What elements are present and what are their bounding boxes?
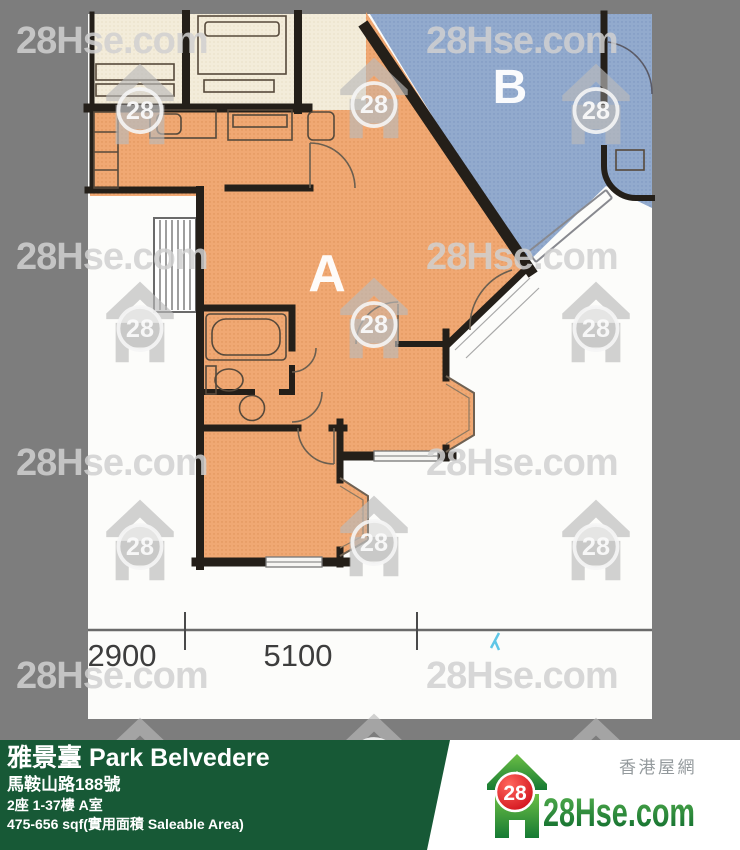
corridor-top-region [302, 14, 366, 110]
footer-bar: 雅景臺 Park Belvedere 馬鞍山路188號 2座 1-37樓 A室 … [0, 740, 740, 850]
site-logo: 香港屋網 28 28Hse.com [481, 740, 740, 850]
bedroom-two-region [190, 14, 300, 108]
logo-badge: 28 [503, 782, 527, 805]
ac-platform [154, 218, 196, 312]
unit-b-label: B [493, 61, 528, 114]
logo-tagline: 香港屋網 [619, 758, 697, 777]
dimension-label-left: 2900 [88, 638, 157, 673]
bedroom-one-region [92, 14, 184, 108]
floorplan-image: A B 2900 5100 28Hse.com28Hse.com28Hse.co… [0, 0, 740, 850]
floorplan-svg: A B 2900 5100 [0, 0, 740, 850]
logo-brand: 28Hse.com [543, 791, 695, 835]
dimension-label-right: 5100 [264, 638, 333, 673]
unit-a-label: A [308, 245, 346, 303]
